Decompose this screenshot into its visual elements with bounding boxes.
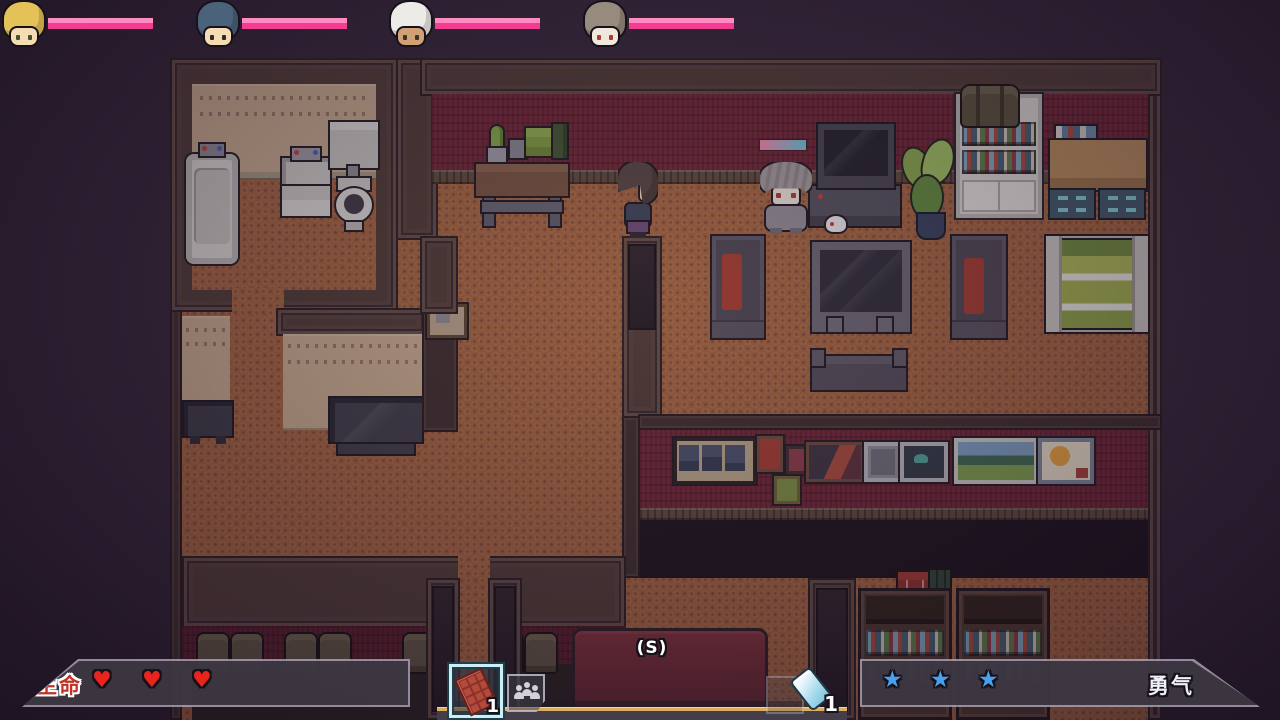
person-head [532, 685, 538, 691]
party-hp-bar [242, 18, 347, 29]
hot-tap-dot [202, 146, 207, 151]
slot-count: 1 [486, 696, 499, 717]
bedroom-tv [330, 398, 422, 458]
tv-glass [824, 130, 888, 176]
door-panel [628, 244, 656, 330]
tv-leg [190, 436, 200, 444]
portrait-eye [597, 35, 601, 40]
drawer-handle [1076, 208, 1086, 212]
table-leg [828, 318, 842, 332]
portrait-eye [222, 35, 226, 40]
heart-icon: ♥ [192, 670, 212, 692]
girl-skirt [628, 222, 648, 232]
toilet [334, 178, 374, 230]
stars-row: ★★★ [882, 669, 1102, 695]
hall-left-post [622, 416, 640, 578]
living-left-door-post [420, 236, 458, 314]
cold-tap-dot [313, 150, 318, 155]
bench-post [812, 350, 824, 366]
star-icon: ★ [978, 669, 999, 692]
hot-tap-dot [294, 150, 299, 155]
bedroom-top-wall [276, 308, 428, 336]
tv-leg [216, 436, 226, 444]
cold-tap-dot [217, 146, 222, 151]
inventory-slot-selected[interactable]: 1 [449, 664, 503, 718]
drawer-handle [1108, 208, 1118, 212]
sink-cabinet [282, 186, 330, 216]
portrait-eye [210, 35, 214, 40]
party-hp-bar [435, 18, 540, 29]
tv-screen [818, 124, 894, 188]
bag-strap [1000, 86, 1004, 126]
npc-granny[interactable] [760, 140, 812, 236]
red-shape [1076, 468, 1088, 478]
drawer-handle [1126, 208, 1136, 212]
life-panel: 生命 ♥♥♥ [8, 661, 408, 705]
person-head [524, 682, 530, 688]
mouse-eye [830, 222, 834, 226]
game-screen: 生命 ♥♥♥ ★★★ 勇气 1 1 (S) [0, 0, 1280, 720]
party-status-bar [0, 0, 800, 52]
party-portrait-3 [391, 2, 431, 45]
picture-frame-square [864, 442, 902, 482]
granny-body [766, 206, 806, 230]
person-body [530, 692, 540, 699]
portrait-eye [609, 35, 613, 40]
houseplant [900, 140, 956, 240]
picture-frame-landscape [806, 442, 864, 482]
picture-frame-valley [954, 438, 1038, 484]
wall-dot-row [288, 360, 418, 364]
table-leg [878, 318, 892, 332]
bookshelf-row [964, 630, 1042, 656]
drawer-handle [1076, 196, 1086, 200]
portrait-eye [415, 35, 419, 40]
wall-dot-row [186, 342, 226, 346]
door-divider [998, 180, 1000, 212]
portrait-eye [16, 35, 20, 40]
bookshelf-doors [962, 180, 1036, 212]
small-tv [184, 402, 232, 446]
bathtub-basin [194, 168, 230, 244]
green-book-stack [526, 128, 552, 156]
party-portrait-1 [4, 2, 44, 45]
armchair-left [712, 236, 764, 338]
portrait-eye [28, 35, 32, 40]
travel-bag [962, 86, 1018, 126]
hallway-rail [640, 508, 1148, 520]
wall-dot-row [200, 112, 368, 116]
drawer-handle [1058, 196, 1068, 200]
phone-count: 1 [824, 692, 838, 716]
glass-top [820, 250, 902, 312]
star-icon: ★ [882, 669, 903, 692]
tv-cabinet [810, 186, 900, 226]
sink-basin [282, 158, 330, 184]
npc-girl[interactable] [618, 162, 658, 240]
granny-eye [791, 193, 796, 198]
toilet-seat [344, 194, 364, 214]
butterfly-shape [914, 454, 928, 463]
picture-frame-red [757, 436, 783, 472]
portrait-face [11, 28, 37, 45]
person-head [516, 685, 522, 691]
portrait-eye [403, 35, 407, 40]
chair-front [712, 320, 764, 338]
party-portrait-4 [585, 2, 625, 45]
interact-hint: (S) [622, 638, 682, 658]
map-right-edge-wall [1148, 58, 1162, 720]
tv-stand-bar [338, 444, 414, 454]
bathtub-faucet [200, 144, 224, 156]
star-icon: ★ [930, 669, 951, 692]
granny-foot [770, 228, 782, 234]
granny-face [773, 188, 799, 204]
shelf-opening [866, 596, 944, 624]
table-shelf [482, 202, 562, 212]
small-tv-screen [184, 402, 232, 436]
side-table-base [480, 196, 564, 226]
armchair-right [952, 236, 1006, 338]
house-map [0, 0, 1280, 720]
portrait-face [205, 28, 231, 45]
hallway-shadow [640, 520, 1148, 578]
plant-leaf [912, 176, 942, 218]
bedroom-tv-screen [330, 398, 422, 442]
picture-frame-green [774, 476, 800, 504]
tv-power-dot [818, 194, 823, 199]
bed-blanket [1062, 240, 1132, 328]
picture-frame-sun [1038, 438, 1094, 484]
bench [812, 356, 906, 390]
sun-shape [1050, 446, 1070, 466]
green-bed [1046, 236, 1148, 332]
picture-frame-city [674, 438, 756, 484]
bag-strap [976, 86, 980, 126]
chair-cushion [964, 258, 984, 314]
courage-panel: ★★★ 勇气 [862, 661, 1258, 705]
frame-panel [679, 445, 699, 471]
phone-item[interactable]: 1 [788, 666, 834, 712]
wall-dot-row [200, 96, 368, 100]
toilet-cistern-cabinet [330, 122, 378, 168]
party-portrait-2 [198, 2, 238, 45]
bed-rail [1132, 236, 1148, 332]
chair-front [952, 320, 1006, 338]
side-table-top [476, 164, 568, 196]
picture-frame-tiny [786, 446, 808, 474]
granny-eye [776, 193, 781, 198]
courage-label: 勇气 [1148, 670, 1194, 700]
party-hp-bar [48, 18, 153, 29]
blue-drawer [1050, 190, 1094, 218]
bathtub [186, 154, 238, 264]
heart-icon: ♥ [142, 670, 162, 692]
wall-dot-row [186, 328, 226, 332]
portrait-face [592, 28, 618, 45]
courage-panel-border: ★★★ 勇气 [860, 659, 1260, 707]
bottom-left-wall [182, 556, 626, 628]
glass-table [812, 242, 910, 332]
bench-post [894, 350, 906, 366]
blue-drawer [1100, 190, 1144, 218]
study-desk [1050, 140, 1146, 190]
chair-cushion [722, 254, 742, 310]
granny-foot [790, 228, 802, 234]
frame-panel [725, 445, 745, 471]
dark-book [553, 124, 567, 158]
hall-door-pillar [622, 236, 662, 418]
heart-icon: ♥ [92, 670, 112, 692]
frame-panel [702, 445, 722, 471]
portrait-face [398, 28, 424, 45]
drawer-handle [1058, 208, 1068, 212]
wall-dot-row [288, 344, 418, 348]
mouse-toy [826, 216, 846, 232]
living-top-wall [420, 58, 1162, 96]
toilet-base [346, 222, 362, 230]
drawer-handle [1126, 196, 1136, 200]
sink-faucet [292, 148, 320, 160]
bed-rail [1046, 236, 1062, 332]
party-hp-bar [629, 18, 734, 29]
inventory-slot-contacts[interactable] [507, 674, 545, 712]
picture-frame-butterfly [900, 442, 948, 482]
shelf-opening [964, 596, 1042, 624]
girl-feet [630, 232, 646, 238]
plant-pot [918, 214, 944, 238]
bathroom-sink [282, 148, 330, 216]
bookshelf-row [962, 150, 1036, 174]
girl-hair [618, 162, 658, 204]
bookshelf-row [866, 630, 944, 656]
hallway-top-edge [638, 414, 1162, 430]
hearts-row: ♥♥♥ [92, 670, 392, 696]
shelf-bag [526, 634, 556, 672]
small-box [510, 140, 526, 158]
drawer-handle [1108, 196, 1118, 200]
npc-health-bar [760, 140, 806, 150]
